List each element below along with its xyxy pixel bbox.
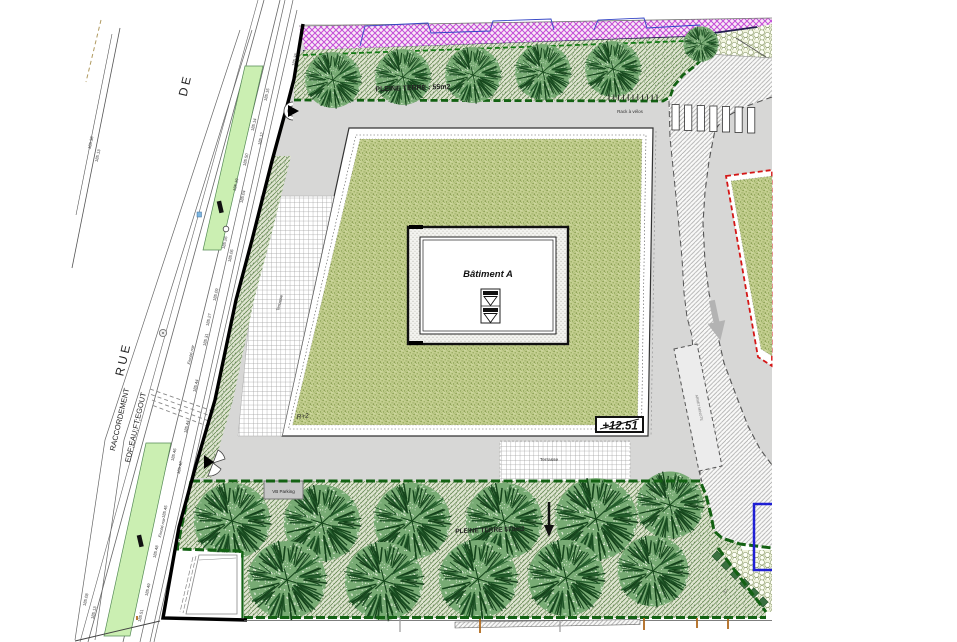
svg-text:Enrobé noir: Enrobé noir bbox=[158, 517, 166, 538]
svg-text:185.44: 185.44 bbox=[192, 378, 200, 392]
svg-text:185.44: 185.44 bbox=[183, 419, 191, 433]
svg-text:185.15: 185.15 bbox=[263, 87, 271, 101]
svg-text:DE: DE bbox=[176, 72, 195, 97]
svg-text:Bâtiment A: Bâtiment A bbox=[463, 269, 513, 280]
svg-text:185.40: 185.40 bbox=[176, 460, 184, 474]
svg-text:185.27: 185.27 bbox=[205, 312, 213, 326]
svg-text:185.12: 185.12 bbox=[257, 131, 265, 145]
svg-text:185.04: 185.04 bbox=[239, 189, 247, 203]
svg-text:Rack à vélos: Rack à vélos bbox=[617, 109, 644, 114]
svg-text:185.36: 185.36 bbox=[87, 135, 95, 149]
svg-text:185.49: 185.49 bbox=[144, 582, 152, 596]
svg-text:Terrasse: Terrasse bbox=[540, 457, 559, 463]
svg-text:185.13: 185.13 bbox=[94, 148, 102, 162]
svg-text:RUE: RUE bbox=[112, 341, 133, 378]
svg-text:185.45: 185.45 bbox=[161, 504, 169, 518]
svg-text:185.08: 185.08 bbox=[82, 592, 90, 606]
svg-text:185.46: 185.46 bbox=[170, 447, 178, 461]
svg-text:185.06: 185.06 bbox=[227, 248, 235, 262]
svg-text:185.48: 185.48 bbox=[152, 544, 160, 558]
svg-text:Enrobé noir: Enrobé noir bbox=[187, 344, 195, 365]
svg-text:VB Parking: VB Parking bbox=[272, 489, 295, 494]
svg-text:185.51: 185.51 bbox=[137, 608, 145, 622]
svg-text:+12.51: +12.51 bbox=[602, 421, 638, 433]
